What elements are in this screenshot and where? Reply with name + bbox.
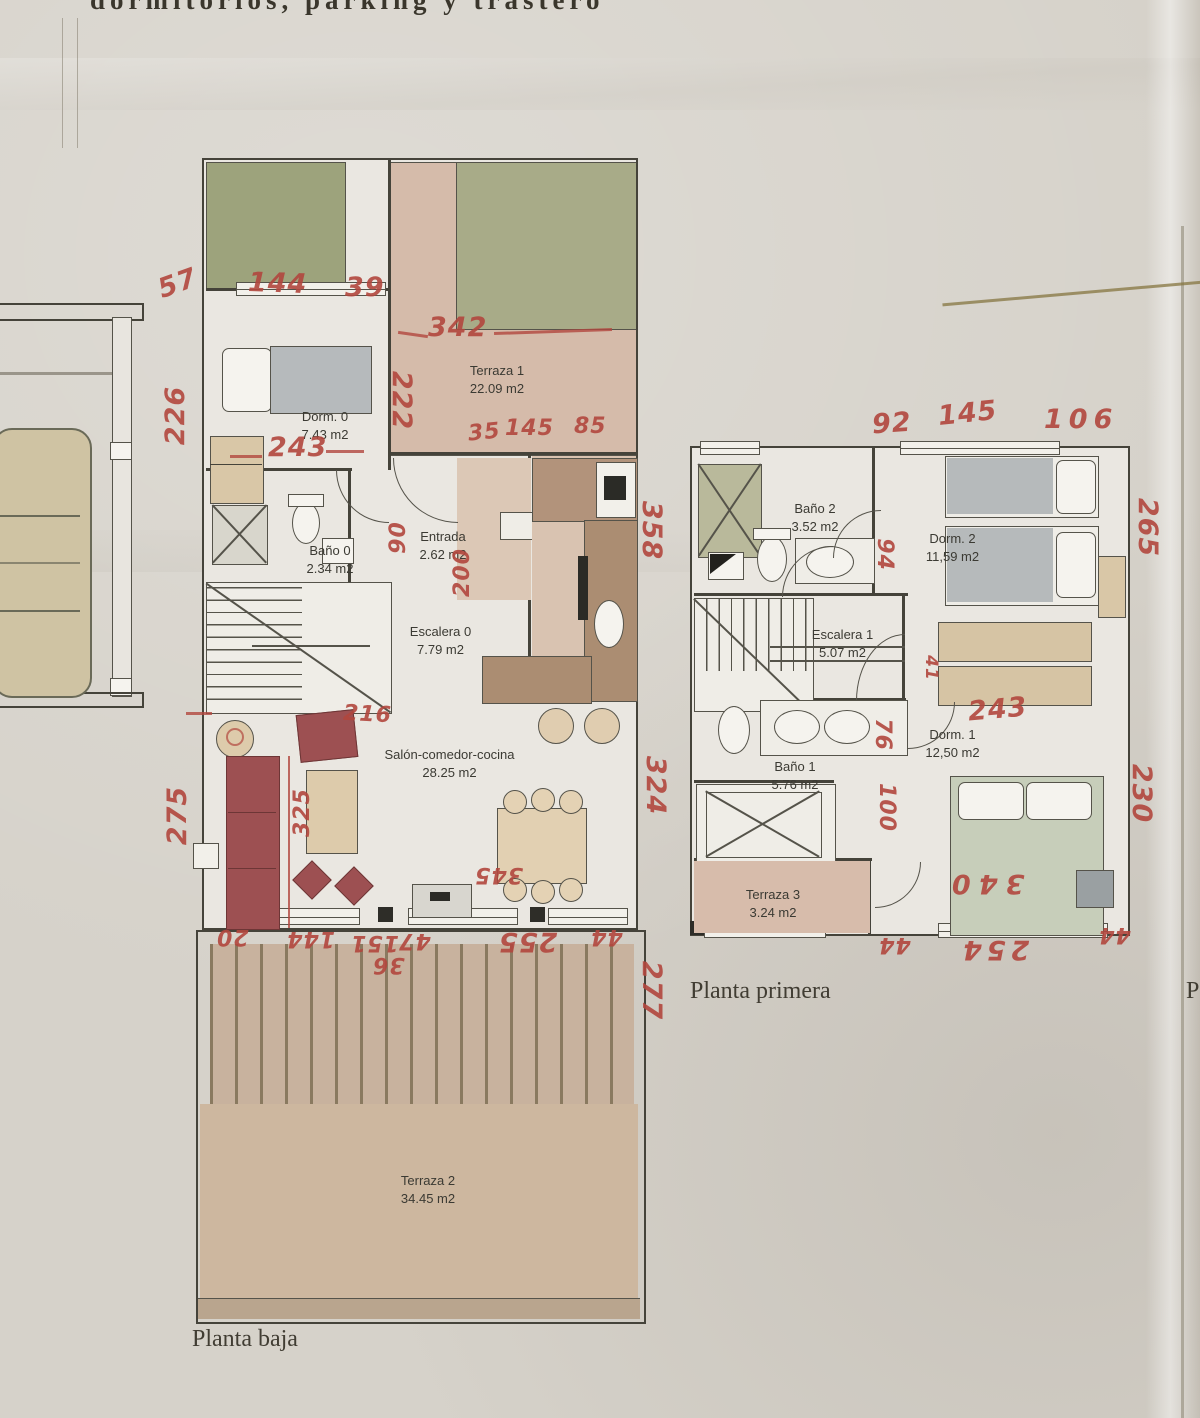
paper-fold-band [1146, 0, 1200, 1418]
paper-crease [0, 58, 1200, 110]
dim-gf-top1: 57 [154, 262, 202, 305]
gf-bed-mattress [270, 346, 372, 414]
room-label-escalera0: Escalera 0 7.79 m2 [393, 623, 488, 658]
ff-window-bano2 [700, 441, 760, 455]
gf-flower-mark [226, 728, 244, 746]
gf-dishwasher [578, 556, 588, 620]
dim-ff-door4: 100 [874, 783, 899, 832]
dimension-line [326, 450, 364, 453]
dim-ff-bottom3: 44 [1098, 922, 1131, 947]
dim-gf-salon-height: 275 [162, 786, 193, 845]
terraza2-slats [210, 944, 634, 1104]
gf-column [378, 907, 393, 922]
gf-stool [584, 708, 620, 744]
room-name: Escalera 0 [393, 623, 488, 641]
dimension-line [186, 712, 212, 715]
gf-kitchen-sink [594, 600, 624, 648]
dim-ff-bottom2: 254 [958, 934, 1029, 965]
gf-toilet-bowl [292, 502, 320, 544]
room-area: 3.24 m2 [728, 904, 818, 922]
gf-wall [388, 452, 638, 455]
ff-bed2-mattress [947, 458, 1053, 514]
room-label-escalera1: Escalera 1 5.07 m2 [795, 626, 890, 661]
room-name: Baño 0 [290, 542, 370, 560]
dim-ff-door2: 41 [921, 655, 941, 681]
dim-gf-right-height2: 324 [640, 756, 671, 815]
dim-gf-right-height1: 358 [636, 501, 667, 560]
room-name: Dorm. 2 [905, 530, 1000, 548]
room-label-dorm1: Dorm. 1 12,50 m2 [905, 726, 1000, 761]
room-area: 5.76 m2 [755, 776, 835, 794]
dim-gf-bottom4: 47 [398, 928, 431, 953]
dim-ff-door3: 76 [870, 718, 895, 751]
dimension-line [288, 756, 290, 928]
ff-nightstand [1098, 556, 1126, 618]
dim-gf-bottom5: 36 [372, 952, 405, 977]
ff-bed2-pillow [1056, 460, 1096, 514]
dim-ff-top1: 92 [871, 407, 913, 441]
dim-ff-top2: 145 [937, 395, 999, 432]
edge-partial-caption: P [1186, 978, 1199, 1005]
gf-caption: Planta baja [192, 1326, 298, 1353]
gf-oven [604, 476, 626, 500]
room-area: 34.45 m2 [378, 1190, 478, 1208]
dimension-line [230, 455, 262, 458]
dim-ff-bed-width: 340 [944, 868, 1024, 899]
car-roof-line [0, 562, 80, 564]
room-area: 2.34 m2 [290, 560, 370, 578]
room-area: 7.79 m2 [393, 641, 488, 659]
gf-chair [531, 788, 555, 812]
room-label-bano1: Baño 1 5.76 m2 [755, 758, 835, 793]
ff-window-dorm2 [900, 441, 1060, 455]
ff-laundry-wedge [710, 554, 736, 574]
dim-gf-top2: 144 [247, 267, 307, 300]
gf-stool [538, 708, 574, 744]
dim-gf-hall-width: 90 [386, 521, 411, 554]
room-name: Dorm. 1 [905, 726, 1000, 744]
dim-gf-bottom7: 44 [590, 924, 623, 949]
scanned-floorplan-sheet: dormitorios, parking y trastero [0, 0, 1200, 1418]
gf-column [530, 907, 545, 922]
ff-toilet-bowl [757, 536, 787, 582]
dim-ff-bottom1: 44 [878, 932, 911, 957]
gf-side-table [193, 843, 219, 869]
room-label-salon: Salón-comedor-cocina 28.25 m2 [372, 746, 527, 781]
room-name: Terraza 1 [447, 362, 547, 380]
dim-gf-window3: 85 [574, 414, 607, 439]
gf-stairs-treads [207, 583, 302, 711]
dim-gf-bottom6: 255 [498, 926, 557, 957]
dim-ff-door1: 94 [872, 538, 897, 571]
gf-toilet-tank [288, 494, 324, 507]
room-label-dorm2: Dorm. 2 11,59 m2 [905, 530, 1000, 565]
gf-tv-unit [412, 884, 472, 918]
room-label-terraza2: Terraza 2 34.45 m2 [378, 1172, 478, 1207]
dim-gf-left-height: 226 [160, 386, 191, 445]
dim-gf-kitchen-height: 200 [450, 548, 475, 597]
dim-gf-window2: 145 [505, 416, 554, 441]
room-area: 28.25 m2 [372, 764, 527, 782]
gf-cabinet-divider [210, 464, 262, 465]
dim-ff-right-height2: 230 [1126, 764, 1157, 823]
gf-tv [430, 892, 450, 901]
ff-bano1-toilet [718, 706, 750, 754]
dim-gf-stair-width: 216 [342, 701, 392, 729]
ff-bed3-pillow [1056, 532, 1096, 598]
ff-wardrobe [938, 622, 1092, 662]
room-area: 5.07 m2 [795, 644, 890, 662]
gf-chair [559, 878, 583, 902]
garage-column [110, 442, 132, 460]
room-area: 3.52 m2 [775, 518, 855, 536]
dim-gf-terraza-width: 342 [428, 312, 487, 343]
room-label-bano0: Baño 0 2.34 m2 [290, 542, 370, 577]
page-edge-line [1181, 226, 1184, 1418]
gf-sofa [226, 756, 280, 930]
header-partial-text: dormitorios, parking y trastero [90, 0, 604, 16]
room-label-bano2: Baño 2 3.52 m2 [775, 500, 855, 535]
gf-chair [559, 790, 583, 814]
dim-gf-window1: 35 [467, 418, 502, 446]
dim-gf-bed-width: 243 [268, 432, 327, 463]
room-name: Terraza 2 [378, 1172, 478, 1190]
room-name: Entrada [403, 528, 483, 546]
dim-gf-door-bottom: 345 [474, 862, 523, 887]
paper-edge-strip [62, 18, 78, 148]
gf-stairs-arrow [252, 645, 370, 647]
dim-gf-bottom1: 20 [216, 924, 249, 949]
dim-gf-salon-width: 325 [290, 788, 315, 837]
ff-bano1-sink [774, 710, 820, 744]
terraza2-bottom-band [198, 1298, 640, 1319]
dim-ff-right-height1: 265 [1132, 498, 1163, 557]
room-area: 12,50 m2 [905, 744, 1000, 762]
room-name: Salón-comedor-cocina [372, 746, 527, 764]
dim-gf-terraza2-height: 277 [636, 961, 667, 1020]
dim-ff-wardrobe-width: 243 [967, 691, 1029, 727]
ff-bano1-sink [824, 710, 870, 744]
dim-gf-bottom2: 144 [286, 926, 335, 951]
room-area: 22.09 m2 [447, 380, 547, 398]
gf-bed-pillow [222, 348, 272, 412]
ff-bed1-blanket [1076, 870, 1114, 908]
gf-dorm0-cabinet [210, 436, 264, 504]
parking-line [0, 372, 112, 375]
room-name: Terraza 3 [728, 886, 818, 904]
dim-gf-top3: 39 [345, 272, 385, 303]
dim-gf-terraza-height: 222 [386, 371, 417, 430]
gf-chair [531, 880, 555, 904]
dim-ff-top3: 106 [1044, 404, 1118, 435]
room-name: Escalera 1 [795, 626, 890, 644]
room-area: 11,59 m2 [905, 548, 1000, 566]
car-rear-window [0, 610, 80, 612]
gf-chair [503, 790, 527, 814]
ff-bed1-pillow [1026, 782, 1092, 820]
car-windshield [0, 515, 80, 517]
room-label-terraza1: Terraza 1 22.09 m2 [447, 362, 547, 397]
gf-kitchen-peninsula [482, 656, 592, 704]
ff-caption: Planta primera [690, 978, 831, 1005]
ff-bed1-pillow [958, 782, 1024, 820]
room-name: Dorm. 0 [285, 408, 365, 426]
garage-wall-right [112, 317, 132, 697]
gf-window-salon-right [548, 908, 628, 925]
room-name: Baño 2 [775, 500, 855, 518]
gf-sofa-cushion [228, 868, 276, 869]
room-name: Baño 1 [755, 758, 835, 776]
room-label-terraza3: Terraza 3 3.24 m2 [728, 886, 818, 921]
gf-sofa-cushion [228, 812, 276, 813]
